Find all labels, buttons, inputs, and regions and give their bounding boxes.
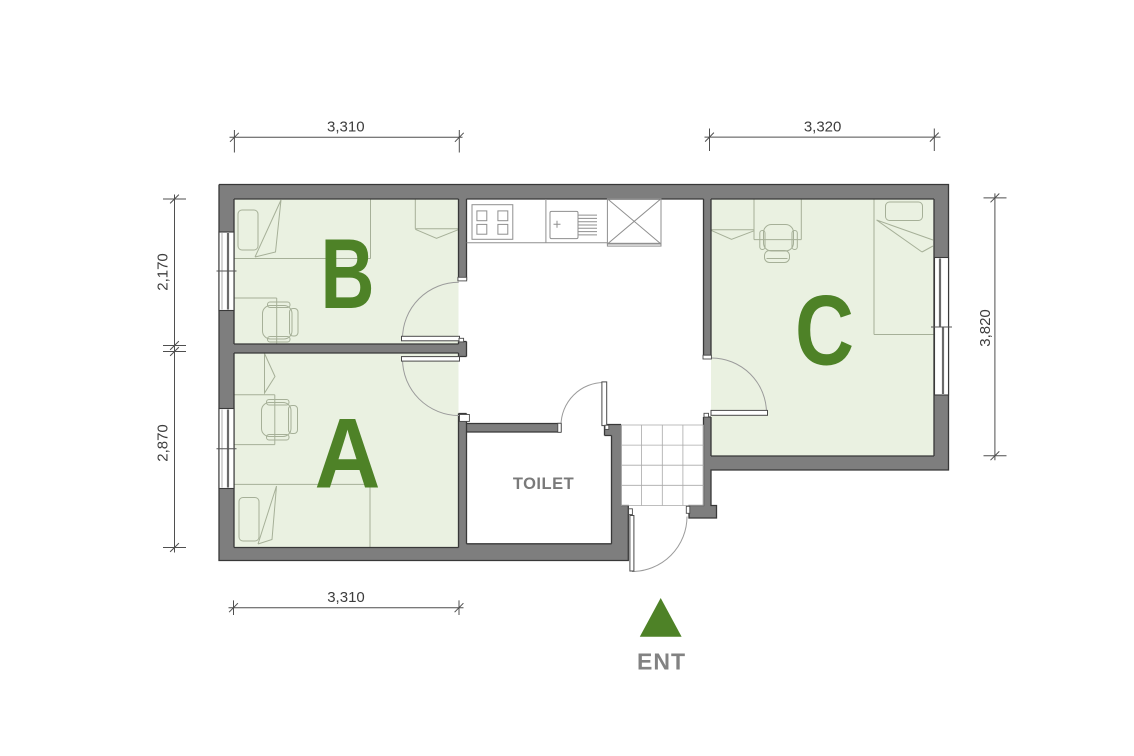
svg-text:3,310: 3,310: [327, 119, 365, 136]
svg-text:3,820: 3,820: [977, 309, 994, 347]
svg-text:2,870: 2,870: [155, 424, 172, 462]
svg-text:ENT: ENT: [637, 649, 686, 675]
svg-text:TOILET: TOILET: [513, 475, 574, 493]
svg-text:B: B: [321, 218, 375, 329]
svg-text:A: A: [315, 397, 381, 508]
svg-text:3,320: 3,320: [804, 119, 842, 136]
svg-text:2,170: 2,170: [155, 253, 172, 291]
svg-text:C: C: [795, 275, 854, 386]
svg-text:3,310: 3,310: [327, 589, 365, 606]
